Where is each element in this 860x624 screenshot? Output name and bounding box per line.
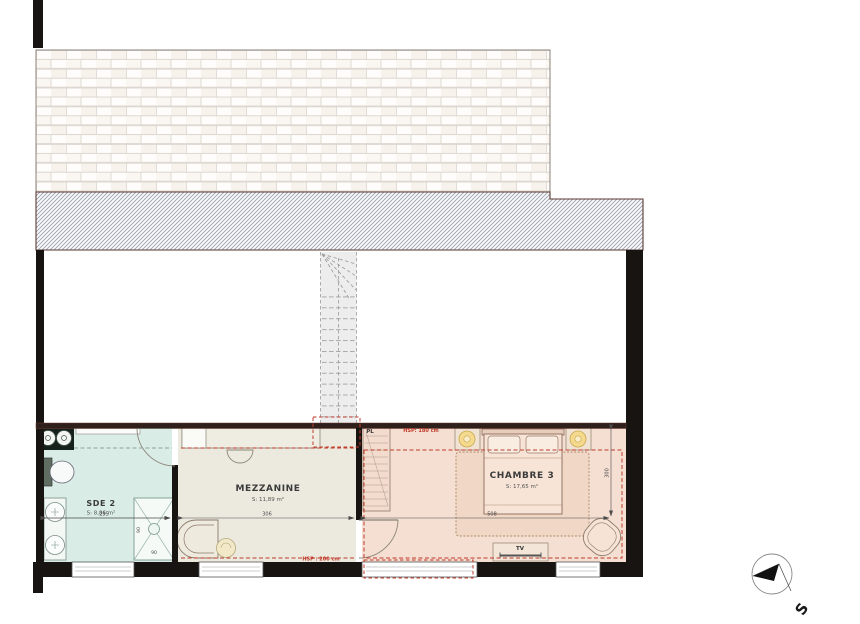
- shower-depth-dim: 90: [136, 527, 142, 533]
- wall-bottom: [600, 562, 643, 577]
- top-left-wall-stub: [33, 0, 43, 48]
- floor-plan-canvas: 90 90 PL: [0, 0, 860, 624]
- compass: S: [752, 554, 812, 619]
- window: [556, 562, 600, 577]
- shower: 90 90: [134, 498, 174, 560]
- room-sde2-area: S: 8,86 m²: [87, 510, 116, 517]
- wall-bottom: [263, 562, 362, 577]
- roof-hatch-band: [36, 192, 643, 250]
- wall-left: [36, 250, 44, 577]
- room-chambre3-area: S: 17,65 m²: [506, 483, 538, 490]
- chambre3-width-dim: 508: [487, 512, 497, 518]
- tv-label: TV: [516, 546, 525, 552]
- shower-width-dim: 90: [151, 550, 157, 556]
- window: [362, 562, 477, 577]
- wall-mezzanine-chambre3: [356, 428, 362, 520]
- closet-label: PL: [366, 429, 374, 435]
- wall-bottom: [33, 562, 72, 577]
- room-chambre3-name: CHAMBRE 3: [490, 471, 555, 481]
- mezzanine-width-dim: 306: [262, 512, 272, 518]
- room-mezzanine-name: MEZZANINE: [235, 484, 300, 494]
- dryer-icon: [57, 431, 72, 446]
- window: [199, 562, 263, 577]
- mezzanine-hsp-note: HSP : 200 cm: [302, 557, 339, 563]
- roof-brick-area: [36, 50, 550, 192]
- wall-top: [36, 423, 626, 429]
- floor-plan-page: 90 90 PL: [0, 0, 860, 624]
- room-mezzanine-area: S: 11,89 m²: [252, 496, 284, 503]
- toilet-bowl: [50, 461, 74, 483]
- armchair: [177, 520, 218, 558]
- north-arrow-icon: [753, 564, 779, 581]
- wall-bottom: [134, 562, 199, 577]
- wall-bottom: [477, 562, 556, 577]
- shower-drain-icon: [149, 524, 160, 535]
- chambre3-depth-dim: 300: [605, 468, 611, 478]
- desk-cabinet: [182, 428, 206, 448]
- wall-sde2-mezzanine: [172, 465, 178, 562]
- window: [72, 562, 134, 577]
- tv-unit: TV: [493, 543, 548, 561]
- wall-right: [626, 250, 643, 577]
- pouf: [217, 539, 236, 558]
- chambre3-hsp-note: HSP: 180 cm: [403, 428, 439, 434]
- stairwell: [321, 252, 357, 448]
- compass-south-label: S: [791, 600, 812, 619]
- wall-bottom-stub: [33, 577, 43, 593]
- room-sde2-name: SDE 2: [86, 499, 115, 508]
- roof-section: [33, 0, 643, 250]
